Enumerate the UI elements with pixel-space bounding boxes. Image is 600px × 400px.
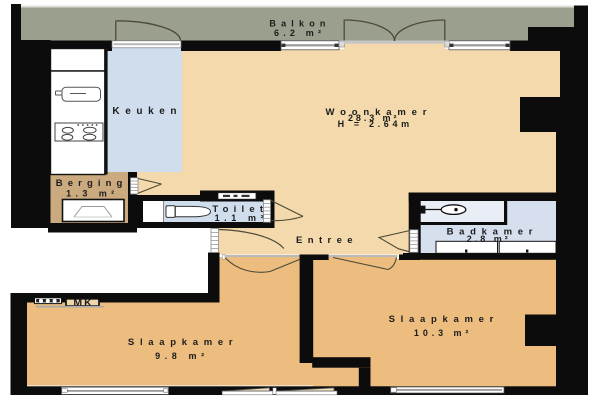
svg-text:H = 2.64m: H = 2.64m — [338, 119, 413, 129]
svg-text:Slaapkamer: Slaapkamer — [128, 337, 238, 348]
svg-text:Berging: Berging — [56, 178, 128, 189]
svg-text:9.8 m²: 9.8 m² — [155, 351, 209, 361]
svg-text:Keuken: Keuken — [112, 106, 182, 117]
svg-text:1.3 m²: 1.3 m² — [66, 189, 118, 199]
svg-text:10.3 m²: 10.3 m² — [414, 328, 472, 338]
svg-text:Balkon: Balkon — [269, 19, 330, 29]
svg-text:Slaapkamer: Slaapkamer — [389, 314, 499, 325]
svg-text:Entree: Entree — [296, 235, 358, 246]
svg-text:2.8 m²: 2.8 m² — [467, 234, 511, 244]
svg-text:6.2 m²: 6.2 m² — [274, 28, 325, 38]
svg-text:1.1 m²: 1.1 m² — [215, 213, 269, 223]
